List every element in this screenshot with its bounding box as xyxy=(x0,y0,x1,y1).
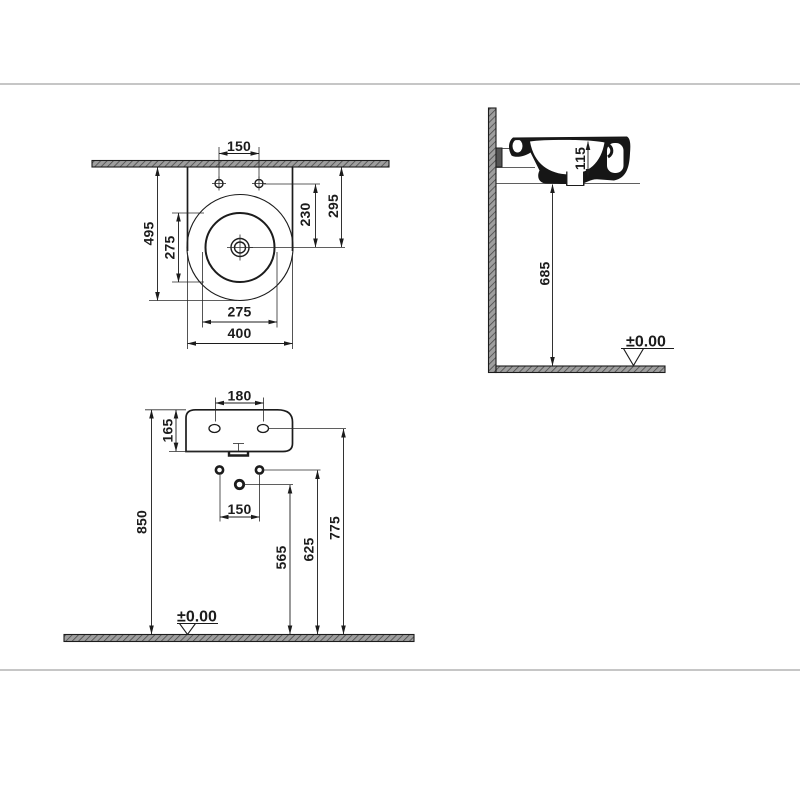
side-wall-section xyxy=(489,108,497,373)
front-view: 180 165 850 150 565 625 xyxy=(64,388,414,642)
dimension-label: 150 xyxy=(228,501,252,517)
dimension-label: 115 xyxy=(572,147,588,170)
datum-triangle-icon xyxy=(180,624,196,635)
front-dim-floor-to-taps: 775 xyxy=(327,429,344,634)
side-dim-floor-to-underside: 685 xyxy=(537,185,553,366)
front-waste-hole xyxy=(235,480,243,488)
technical-drawing-page: 150 495 275 230 295 xyxy=(0,0,800,800)
basin-section xyxy=(509,137,630,186)
front-fixing-hole-left xyxy=(216,466,223,473)
plan-dim-bowl-depth: 275 xyxy=(162,213,205,282)
dimension-label: 565 xyxy=(273,546,289,570)
front-dim-floor-to-waste: 565 xyxy=(273,485,290,634)
dimension-label: 295 xyxy=(325,194,341,218)
front-basin-outline xyxy=(186,410,293,452)
washbasin-dimension-drawing: 150 495 275 230 295 xyxy=(0,0,800,800)
dimension-label: 275 xyxy=(162,236,178,260)
front-fixing-hole-right xyxy=(256,466,263,473)
plan-wall-section xyxy=(92,161,389,168)
front-siphon-cover xyxy=(229,444,248,456)
plan-dim-bowl-width: 275 xyxy=(203,252,278,328)
plan-dim-tap-spacing: 150 xyxy=(219,138,259,178)
dimension-label: 180 xyxy=(228,388,252,404)
dimension-label: 150 xyxy=(227,138,251,154)
side-floor-datum: ±0.00 xyxy=(621,334,674,366)
front-tap-hole-left xyxy=(209,425,220,433)
drain-box xyxy=(567,172,583,186)
dimension-label: 165 xyxy=(160,419,176,443)
plan-view: 150 495 275 230 295 xyxy=(92,138,389,349)
side-floor-section xyxy=(496,366,665,373)
front-floor-section xyxy=(64,635,414,642)
front-tap-hole-right xyxy=(258,425,269,433)
dimension-label: 400 xyxy=(228,325,252,341)
dimension-label: 275 xyxy=(228,304,252,320)
front-dim-floor-to-rim: 850 xyxy=(134,410,152,634)
dimension-label: 685 xyxy=(537,262,553,286)
wall-bracket xyxy=(496,148,502,167)
left-rim-hollow xyxy=(513,140,523,153)
front-floor-datum: ±0.00 xyxy=(177,609,218,635)
plan-tap-hole-left xyxy=(212,177,226,191)
plan-tap-hole-right xyxy=(252,177,266,191)
side-view: 115 685 ±0.00 xyxy=(489,108,675,373)
dimension-label: 850 xyxy=(134,510,150,534)
datum-triangle-icon xyxy=(624,349,644,366)
front-dim-tap-spacing: 180 xyxy=(216,388,264,422)
dimension-label: 495 xyxy=(141,222,157,246)
dimension-label: 775 xyxy=(327,516,343,540)
dimension-label: 625 xyxy=(301,538,317,562)
dimension-label: 230 xyxy=(297,203,313,227)
front-dim-floor-to-fixing: 625 xyxy=(301,471,318,635)
drain-outlet xyxy=(567,172,584,186)
